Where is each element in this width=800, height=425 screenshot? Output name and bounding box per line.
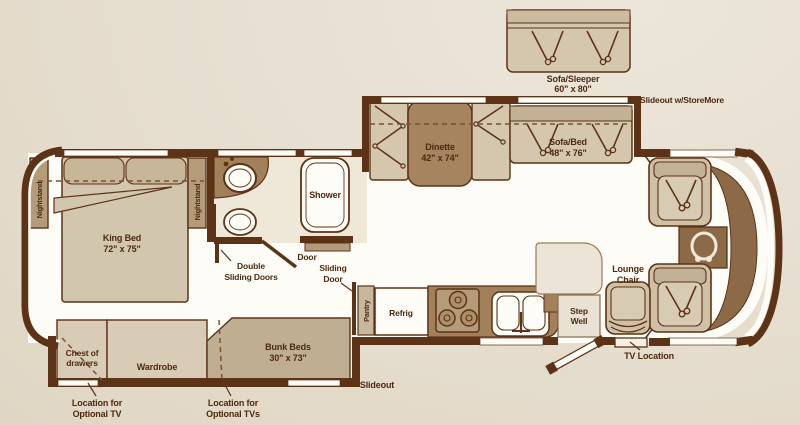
windshield <box>670 150 737 157</box>
svg-text:Optional TVs: Optional TVs <box>206 409 260 419</box>
lounge-chair <box>606 282 650 334</box>
pantry-label: Pantry <box>362 299 371 322</box>
window <box>381 97 486 103</box>
driver-seat <box>649 158 711 226</box>
pocket-door-track <box>212 204 216 238</box>
king-bed-size: 72" x 75" <box>103 244 140 254</box>
door-label: Door <box>297 252 317 262</box>
nightstand-right-label: Nightstand <box>193 184 202 221</box>
tv-location-label: TV Location <box>624 351 674 361</box>
svg-text:Well: Well <box>571 316 588 326</box>
sofa-sleeper-label: Sofa/Sleeper <box>547 74 600 84</box>
window <box>518 97 628 103</box>
floor-plan-page: Sofa/Sleeper 60" x 80" Slideout w/StoreM… <box>0 0 800 425</box>
slideout-storemore-label: Slideout w/StoreMore <box>640 95 724 105</box>
svg-text:Chair: Chair <box>617 275 640 285</box>
king-bed-label: King Bed <box>103 233 141 243</box>
optional-tv-label: Location for <box>72 398 123 408</box>
faucet <box>224 162 229 167</box>
wardrobe-cabinet <box>107 320 207 382</box>
window <box>304 150 352 156</box>
svg-text:Optional TV: Optional TV <box>73 409 122 419</box>
optional-tvs-label: Location for <box>208 398 259 408</box>
sofa-sleeper <box>507 10 630 72</box>
wardrobe-label: Wardrobe <box>137 362 178 372</box>
shower-label: Shower <box>309 190 341 200</box>
toilet <box>224 209 256 235</box>
rear-slideout-label: Slideout <box>360 380 394 390</box>
window <box>480 338 543 345</box>
nightstand-left-label: Nightstand <box>35 182 44 219</box>
bunk-beds-label: Bunk Beds <box>265 342 311 352</box>
sofa-bed-size: 48" x 76" <box>549 148 586 158</box>
step-well-label: Step <box>570 306 588 316</box>
bunk-beds-size: 30" x 73" <box>269 353 306 363</box>
double-sliding-doors-label: Double <box>237 261 265 271</box>
shower-step <box>305 243 350 251</box>
sofa-sleeper-size: 60" x 80" <box>554 84 591 94</box>
window <box>288 380 340 386</box>
svg-text:drawers: drawers <box>66 358 98 368</box>
burner <box>450 292 467 309</box>
burner <box>461 310 477 326</box>
window <box>218 150 296 156</box>
window <box>58 380 98 386</box>
sliding-door-track <box>352 282 356 335</box>
pocket-door-track <box>215 241 219 263</box>
pillow-left <box>64 158 124 184</box>
window <box>64 150 168 156</box>
pillow-right <box>126 158 186 184</box>
dinette-label: Dinette <box>425 142 455 152</box>
svg-text:Door: Door <box>323 274 343 284</box>
sofa-bed-label: Sofa/Bed <box>549 137 587 147</box>
dinette-size: 42" x 74" <box>421 153 458 163</box>
rv-floor-plan: Sofa/Sleeper 60" x 80" Slideout w/StoreM… <box>0 0 800 425</box>
king-bed <box>54 157 188 302</box>
passenger-seat <box>649 264 711 332</box>
svg-text:Sliding Doors: Sliding Doors <box>224 272 278 282</box>
burner <box>439 310 455 326</box>
sliding-door-label: Sliding <box>319 263 346 273</box>
chest-of-drawers-label: Chest of <box>66 348 99 358</box>
entry-landing <box>536 243 602 294</box>
refrig-label: Refrig <box>389 308 413 318</box>
lounge-chair-label: Lounge <box>612 264 644 274</box>
counter-end <box>544 292 558 312</box>
